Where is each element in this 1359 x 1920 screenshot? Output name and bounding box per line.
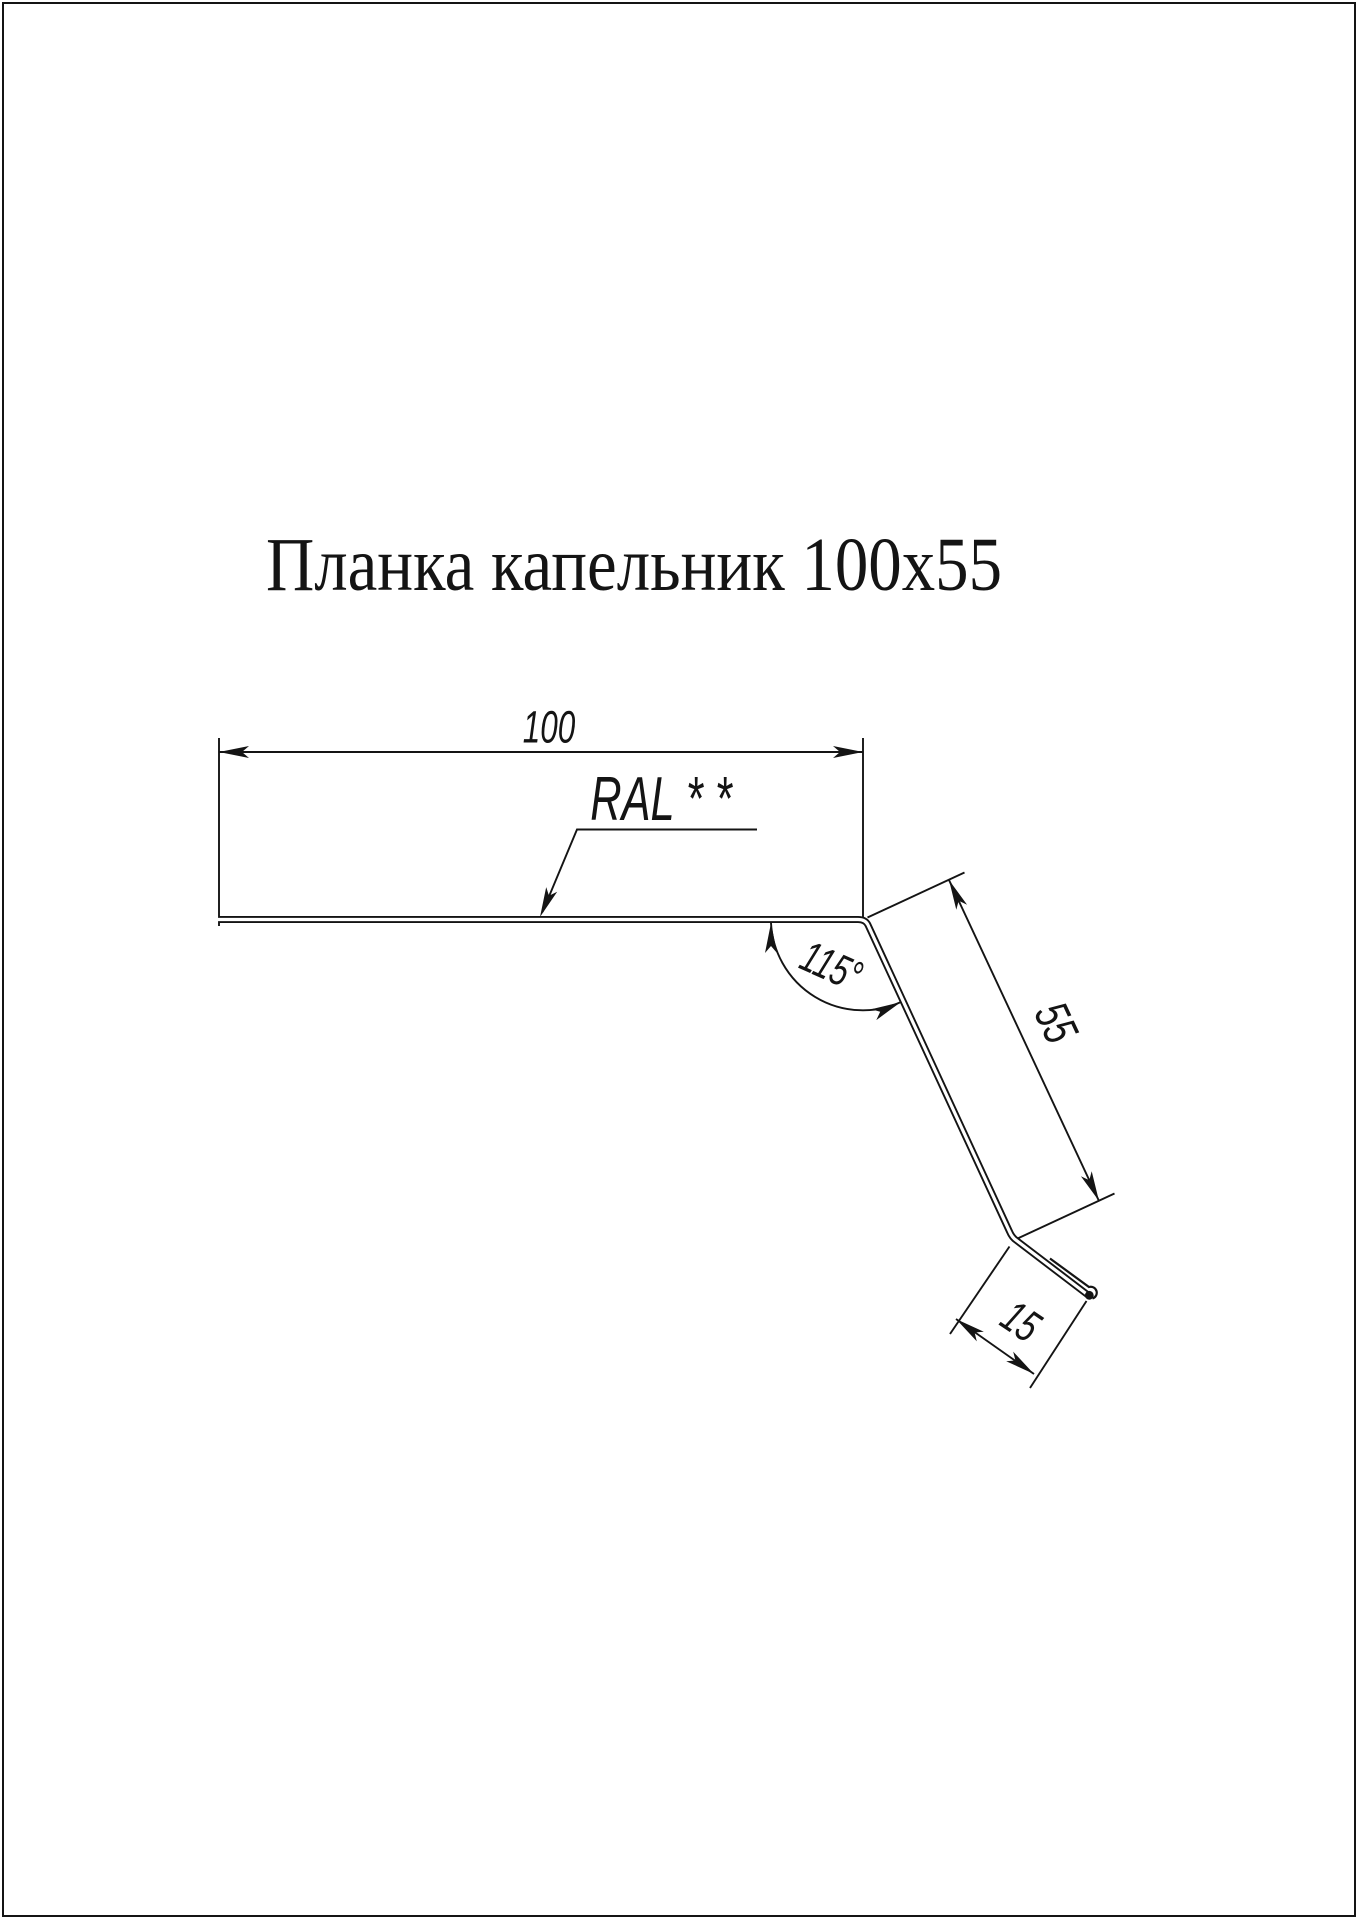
profile-outline bbox=[219, 920, 1090, 1297]
hem-tip-bead bbox=[1085, 1291, 1094, 1300]
arrowhead-angle-side bbox=[871, 1002, 901, 1020]
arrowhead-55-top bbox=[949, 880, 967, 910]
extension-line-55-bottom bbox=[1017, 1194, 1115, 1240]
drawing-sheet: Планка капельник 100х55 100 RAL * * 115°… bbox=[0, 0, 1359, 1920]
dimension-lines-group bbox=[219, 738, 1115, 1388]
dimension-label-width-100: 100 bbox=[523, 705, 576, 750]
extension-line-55-top bbox=[868, 873, 965, 918]
arrowhead-55-bottom bbox=[1081, 1171, 1099, 1201]
arrowheads-group bbox=[219, 746, 1099, 1374]
arrowhead-15-left bbox=[956, 1319, 984, 1341]
profile-core bbox=[217, 920, 1086, 1294]
arrowhead-15-right bbox=[1006, 1352, 1034, 1374]
arrowhead-angle-top bbox=[765, 923, 777, 953]
drawing-title: Планка капельник 100х55 bbox=[266, 527, 1002, 603]
coating-label-ral: RAL * * bbox=[590, 769, 732, 831]
ral-leader-line bbox=[543, 830, 758, 913]
technical-drawing-canvas bbox=[0, 0, 1359, 1920]
arrowhead-ral-leader bbox=[540, 887, 557, 917]
